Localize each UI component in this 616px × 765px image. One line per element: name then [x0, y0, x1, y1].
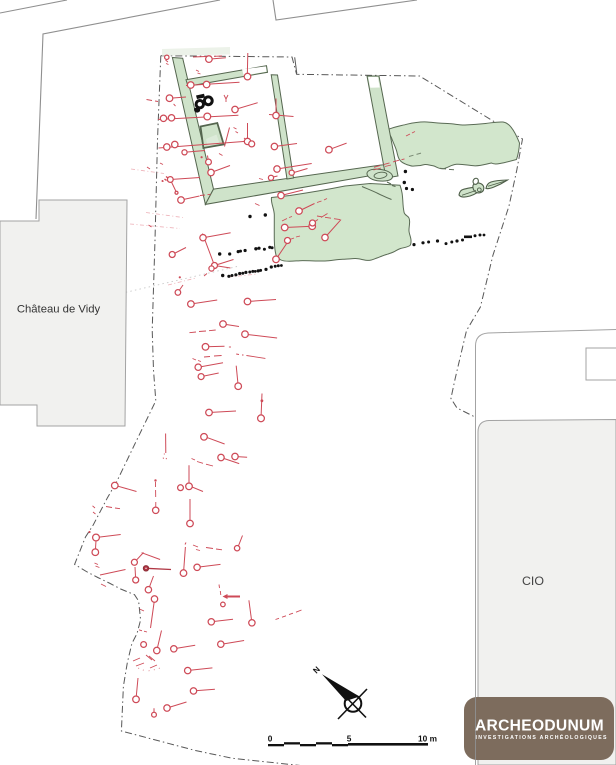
svg-text:0: 0 — [268, 734, 273, 744]
svg-text:5: 5 — [347, 734, 352, 744]
svg-text:CIO: CIO — [522, 574, 544, 588]
svg-text:INVESTIGATIONS ARCHÉOLOGIQUES: INVESTIGATIONS ARCHÉOLOGIQUES — [476, 733, 608, 741]
svg-text:ARCHEODUNUM: ARCHEODUNUM — [475, 718, 604, 735]
svg-text:10 m: 10 m — [418, 734, 437, 744]
svg-text:Château de Vidy: Château de Vidy — [17, 304, 101, 316]
